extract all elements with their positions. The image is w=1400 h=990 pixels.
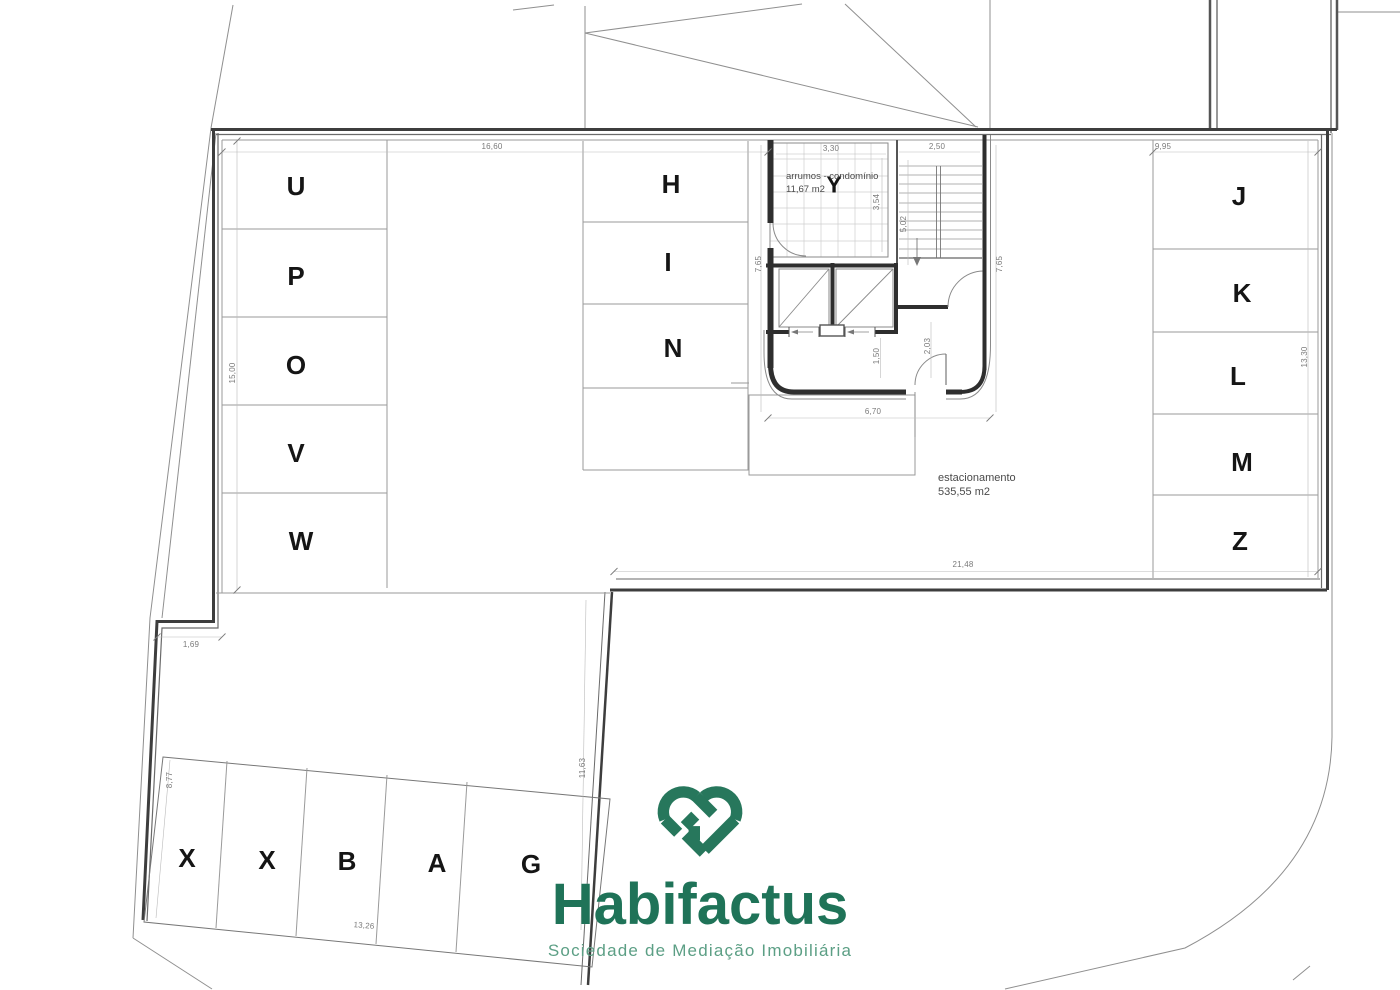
stall-label: P <box>287 263 304 289</box>
dim-label: 8,77 <box>166 772 174 788</box>
stall-label: G <box>521 851 541 877</box>
stall-label: U <box>287 173 306 199</box>
stall-label: X <box>178 845 195 871</box>
dim-label: 7,65 <box>755 256 763 272</box>
stall-label: K <box>1233 280 1252 306</box>
stall-label: W <box>289 528 314 554</box>
floorplan-page: U P O V W H I N J K L M Z X X B A G Y ar… <box>0 0 1400 990</box>
dim-label: 2,50 <box>929 143 945 151</box>
dim-label: 21,48 <box>952 561 973 569</box>
dim-label: 2,03 <box>924 338 932 354</box>
logo-tagline: Sociedade de Mediação Imobiliária <box>548 942 852 959</box>
stall-label: X <box>258 847 275 873</box>
stall-label: Z <box>1232 528 1248 554</box>
dim-label: 16,60 <box>481 143 502 151</box>
stall-label: O <box>286 352 306 378</box>
storage-room-label: arrumos - condomínio <box>786 172 878 182</box>
storage-room-area: 11,67 m2 <box>786 185 825 195</box>
stall-label: L <box>1230 363 1246 389</box>
dim-label: 15,00 <box>229 362 237 383</box>
dim-label: 1,69 <box>183 641 199 649</box>
dim-label: 13,30 <box>1301 346 1309 367</box>
stall-label: H <box>662 171 681 197</box>
stall-label: M <box>1231 449 1253 475</box>
dim-label: 3,30 <box>823 145 839 153</box>
stall-label: A <box>428 850 447 876</box>
stall-label: J <box>1232 183 1246 209</box>
habifactus-heart-icon <box>651 771 749 866</box>
dim-label: 11,63 <box>579 758 587 778</box>
stall-label: N <box>664 335 683 361</box>
dim-label: 13,26 <box>353 921 375 931</box>
dim-label: 7,65 <box>996 256 1004 272</box>
parking-area-label: estacionamento <box>938 473 1016 484</box>
dim-label: 5,02 <box>900 216 908 232</box>
parking-area-size: 535,55 m2 <box>938 487 990 498</box>
dim-label: 1,50 <box>873 348 881 364</box>
logo-wordmark: Habifactus <box>552 876 849 934</box>
dim-label: 6,70 <box>865 408 881 416</box>
dim-label: 9,95 <box>1155 143 1171 151</box>
stall-label: I <box>664 249 671 275</box>
stall-label: B <box>338 848 357 874</box>
dim-label: 3,54 <box>873 194 881 210</box>
stall-label: V <box>287 440 304 466</box>
